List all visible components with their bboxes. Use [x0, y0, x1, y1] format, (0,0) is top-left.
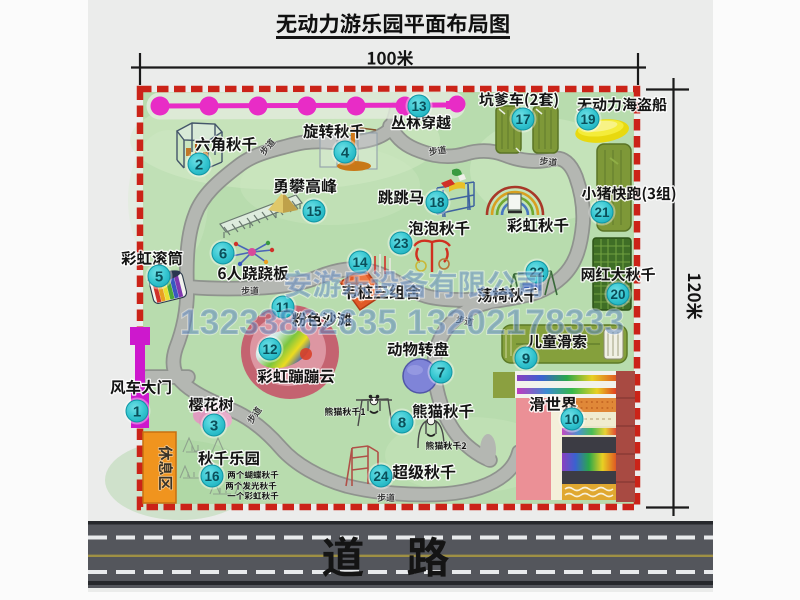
svg-text:13233862635 13202178333: 13233862635 13202178333	[180, 302, 624, 342]
svg-text:18: 18	[429, 195, 445, 210]
svg-text:6: 6	[219, 245, 227, 262]
svg-text:3: 3	[210, 417, 218, 434]
svg-text:9: 9	[522, 350, 530, 367]
svg-text:13: 13	[411, 99, 427, 114]
svg-text:7: 7	[437, 364, 445, 381]
svg-text:19: 19	[580, 112, 595, 127]
svg-text:16: 16	[204, 469, 220, 484]
svg-text:8: 8	[398, 414, 406, 431]
svg-text:23: 23	[393, 236, 409, 251]
svg-text:5: 5	[155, 268, 163, 285]
svg-text:20: 20	[610, 287, 625, 302]
svg-text:10: 10	[564, 412, 579, 427]
svg-text:2: 2	[195, 156, 203, 173]
svg-text:24: 24	[373, 469, 389, 484]
svg-text:21: 21	[594, 205, 610, 220]
svg-text:15: 15	[306, 204, 322, 219]
svg-text:4: 4	[341, 144, 350, 161]
svg-text:12: 12	[262, 342, 277, 357]
svg-text:17: 17	[515, 112, 530, 127]
svg-text:1: 1	[133, 403, 141, 420]
svg-text:14: 14	[352, 255, 368, 270]
